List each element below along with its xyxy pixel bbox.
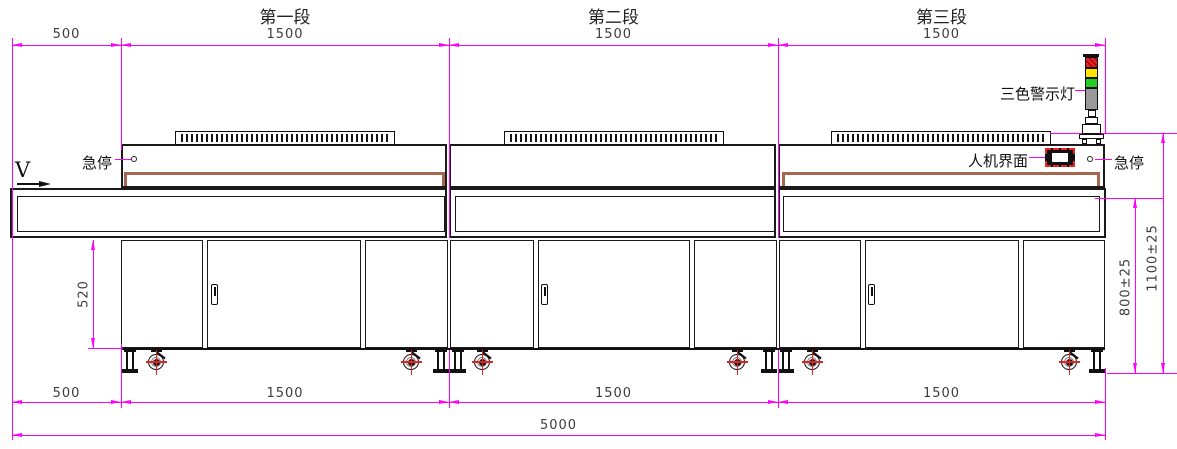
caster-wheel-5 [802,350,824,375]
dim-top-1500-2: 1500 [449,27,778,42]
leveling-foot-5 [778,350,794,373]
dim-line-top [12,45,1105,46]
vent-grille-3 [831,131,1051,145]
hmi-leader [1029,157,1045,158]
tower-light-leader [1075,90,1085,91]
ext-line-x1105-bottom [1105,368,1106,440]
dim-line-bottom [12,402,1105,403]
hood-section-divider-1 [445,144,451,188]
base-frame-line [121,348,1105,350]
estop-right-button-icon [1087,156,1093,162]
dim-bottom-500: 500 [12,386,121,401]
ext-line-x778-top [778,38,779,238]
direction-arrow-line [17,183,39,185]
door-handle-icon-1 [211,284,218,305]
dim-bottom-1500-3: 1500 [778,386,1105,401]
arrow-icon [1161,363,1165,373]
dim-800: 800±25 [1119,258,1134,316]
caster-wheel-3 [472,350,494,375]
direction-label: V [15,158,30,182]
leveling-foot-1 [122,350,138,373]
dim-line-overall [12,435,1105,436]
tower-light-red-segment [1085,57,1098,68]
arrow-icon [1095,43,1105,47]
conveyor-section-divider-2 [774,188,780,238]
estop-left-leader [115,159,131,160]
door-handle-icon-2 [541,284,548,305]
vent-grille-1 [175,131,395,145]
cabinet-door-2 [538,240,690,348]
conveyor-belt-window-3 [783,196,1100,232]
ext-line-belt-top [1095,198,1163,199]
hmi-screen-display [1052,153,1068,162]
cabinet-door-1 [207,240,361,348]
arrow-icon [1133,198,1137,208]
dim-line-1100 [1163,133,1164,373]
tower-light-yellow-segment [1085,68,1098,78]
door-handle-icon-3 [868,284,875,305]
estop-left-label: 急停 [82,152,112,173]
hood-section-divider-2 [774,144,780,188]
ext-line-x12 [12,38,13,440]
arrow-icon [12,433,22,437]
arrow-icon [91,338,95,348]
conveyor-section-divider-1 [445,188,451,238]
estop-right-leader [1095,159,1112,160]
dim-top-1500-3: 1500 [778,27,1105,42]
arrow-icon [1133,363,1137,373]
cabinet-door-3 [865,240,1019,348]
cad-drawing-canvas: 500 1500 1500 1500 第一段 第二段 第三段 500 1500 … [0,0,1177,449]
tower-light-mount-block [1082,124,1101,134]
arrow-icon [778,43,788,47]
ext-line-machine-top [1050,133,1177,134]
section-title-3: 第三段 [778,3,1105,28]
belt-rail-section1 [124,172,445,186]
conveyor-belt-window-2 [455,196,775,232]
estop-left-button-icon [131,156,137,162]
dim-line-520 [93,240,94,348]
leveling-foot-3 [450,350,466,373]
cabinet-panel-2b [694,240,777,348]
arrow-icon [449,43,459,47]
conveyor-belt-window-1 [17,196,445,232]
caster-wheel-6 [1059,350,1081,375]
hmi-screen [1045,148,1075,167]
tower-light-stem-1 [1088,110,1096,117]
ext-line-x449-top [449,38,450,238]
dim-top-500: 500 [12,27,121,42]
arrow-icon [12,43,22,47]
arrow-icon [121,43,131,47]
caster-wheel-4 [727,350,749,375]
caster-wheel-1 [146,350,168,375]
cabinet-panel-1b [365,240,448,348]
dim-520: 520 [77,280,92,308]
ext-line-ground [1107,373,1177,374]
arrow-icon [91,240,95,250]
arrow-icon [111,43,121,47]
arrow-icon [439,43,449,47]
dim-top-1500-1: 1500 [121,27,449,42]
tower-light-mount-leg-left [1082,139,1087,144]
dim-overall-5000: 5000 [12,418,1105,433]
arrow-icon [1161,133,1165,143]
cabinet-panel-1a [121,240,203,348]
estop-right-label: 急停 [1114,152,1144,173]
arrow-icon [1095,433,1105,437]
tower-light-label: 三色警示灯 [993,83,1075,104]
tower-light-green-segment [1085,78,1098,88]
caster-wheel-2 [401,350,423,375]
ext-line-cabinet-bottom [88,348,123,349]
leveling-foot-2 [433,350,449,373]
dim-bottom-1500-2: 1500 [449,386,778,401]
dim-line-800 [1135,198,1136,373]
hmi-label: 人机界面 [960,150,1028,171]
dim-bottom-1500-1: 1500 [121,386,449,401]
dim-1100: 1100±25 [1146,224,1161,292]
cabinet-panel-3b [1023,240,1105,348]
section-title-2: 第二段 [449,3,778,28]
cabinet-panel-3a [779,240,861,348]
section-title-1: 第一段 [121,3,449,28]
tower-light-base-segment [1085,88,1098,110]
leveling-foot-4 [761,350,777,373]
ext-line-x121-top [121,38,122,150]
tower-light-stem-2 [1085,117,1098,124]
leveling-foot-6 [1089,350,1105,373]
belt-rail-section3 [782,172,1100,186]
vent-grille-2 [504,131,724,145]
arrow-icon [768,43,778,47]
tower-light-mount-leg-right [1096,139,1101,144]
cabinet-panel-2a [450,240,534,348]
direction-arrow-icon [39,181,51,187]
ext-line-x1105-top [1105,38,1106,133]
